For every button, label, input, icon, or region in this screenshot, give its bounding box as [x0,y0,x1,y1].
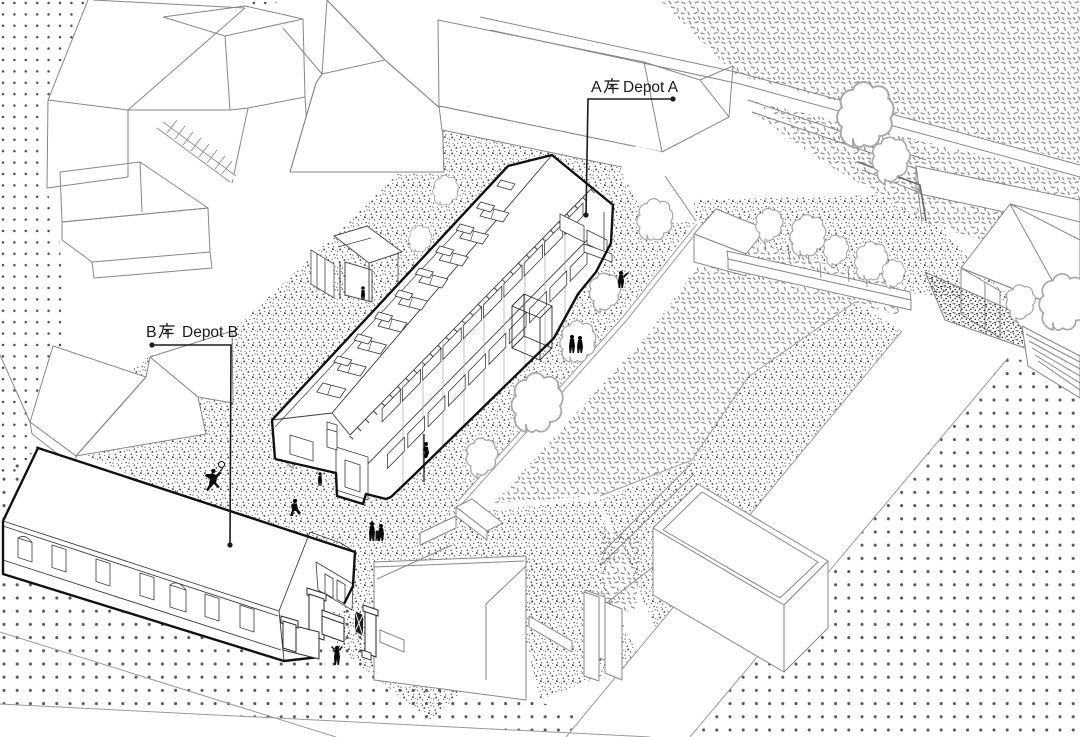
svg-text:A: A [591,79,602,96]
svg-text:Depot A: Depot A [623,79,679,96]
svg-text:Depot B: Depot B [182,324,238,341]
svg-text:B: B [146,324,157,341]
